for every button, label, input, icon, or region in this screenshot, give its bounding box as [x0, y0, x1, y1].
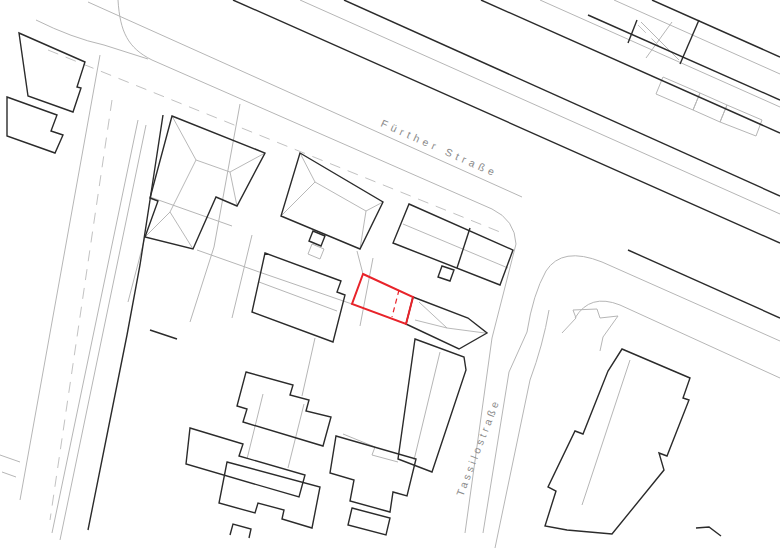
buildings-path — [398, 339, 466, 472]
buildings-path — [545, 349, 690, 534]
parcel-lines-path — [562, 309, 618, 351]
street-lines-path — [52, 120, 138, 533]
street-lines-path — [495, 310, 549, 548]
highlighted-parcel[interactable] — [352, 274, 413, 324]
parcel-lines-layer — [128, 104, 630, 505]
buildings-path — [457, 228, 470, 268]
street-lines-path — [60, 125, 146, 540]
buildings-path — [186, 428, 305, 497]
parcel-lines-path — [190, 104, 240, 322]
buildings-path — [19, 33, 85, 112]
buildings-path — [696, 527, 721, 536]
buildings-path — [233, 0, 780, 243]
parcel-lines-path — [343, 434, 398, 462]
buildings-path — [481, 0, 780, 133]
roof-ridge-lines-path — [415, 302, 485, 333]
buildings-path — [237, 372, 331, 446]
buildings-path — [348, 508, 390, 535]
map-line-layers — [0, 0, 780, 548]
buildings-path — [219, 462, 320, 528]
street-lines-path — [20, 55, 100, 500]
buildings-path — [652, 0, 780, 57]
street-label-tassilostrasse: Tassilostraße — [454, 397, 502, 498]
buildings-path — [628, 20, 637, 43]
street-lines-path — [36, 20, 148, 59]
highlighted-parcel-outline[interactable] — [352, 274, 413, 324]
street-lines-path — [656, 77, 700, 110]
highlighted-parcel-divider — [392, 290, 399, 317]
buildings-path — [230, 524, 251, 538]
buildings-path — [330, 436, 416, 512]
buildings-path — [88, 115, 163, 530]
site-plan: Fürther Straße Tassilostraße — [0, 0, 780, 552]
parcel-lines-path — [582, 360, 630, 505]
site-plan-svg: Fürther Straße Tassilostraße — [0, 0, 780, 552]
buildings-path — [145, 116, 265, 249]
street-lines-path — [575, 301, 780, 378]
buildings-path — [406, 297, 487, 349]
parcel-lines-path — [232, 235, 252, 318]
buildings-path — [680, 20, 699, 64]
street-lines-path — [152, 60, 516, 533]
buildings-path — [588, 15, 780, 100]
street-lines-path — [540, 0, 780, 107]
parcel-lines-path — [357, 251, 363, 274]
buildings-path — [252, 253, 345, 342]
parcel-lines-path — [414, 352, 440, 460]
dashed-centerlines-layer — [48, 25, 662, 520]
buildings-path — [150, 330, 177, 339]
parcel-lines-path — [247, 394, 263, 459]
parcel-lines-path — [302, 338, 315, 396]
buildings-path — [344, 0, 780, 196]
buildings-path — [438, 266, 454, 281]
street-lines-path — [0, 455, 20, 477]
parcel-lines-path — [259, 282, 337, 311]
roof-ridge-lines-path — [145, 116, 265, 249]
parcel-lines-path — [150, 197, 232, 226]
roof-ridge-lines-path — [403, 224, 508, 268]
street-lines-path — [300, 0, 780, 214]
street-label-fuerther-strasse: Fürther Straße — [379, 117, 500, 180]
